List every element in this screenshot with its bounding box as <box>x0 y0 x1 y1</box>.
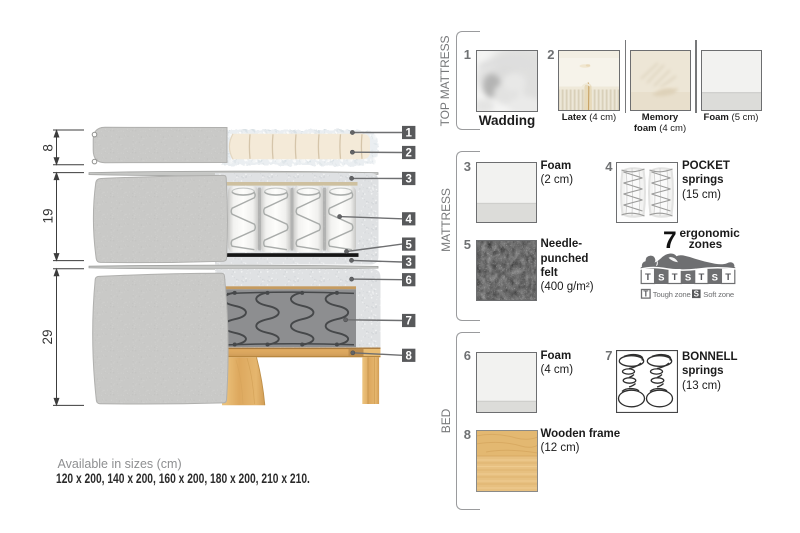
svg-text:S: S <box>712 272 718 283</box>
svg-text:5: 5 <box>405 239 412 251</box>
svg-text:19: 19 <box>40 208 55 223</box>
svg-text:7: 7 <box>405 316 411 328</box>
svg-text:4: 4 <box>405 214 412 226</box>
svg-text:6: 6 <box>405 275 411 287</box>
svg-text:8: 8 <box>41 144 56 152</box>
svg-text:S: S <box>694 290 700 299</box>
svg-text:S: S <box>658 272 664 283</box>
svg-text:T: T <box>725 272 731 283</box>
svg-text:8: 8 <box>405 351 412 363</box>
svg-text:T: T <box>645 272 651 283</box>
svg-text:Tough zone: Tough zone <box>653 290 691 299</box>
svg-text:2: 2 <box>405 148 411 160</box>
svg-text:3: 3 <box>405 174 411 186</box>
svg-text:T: T <box>698 272 704 283</box>
svg-text:T: T <box>643 290 648 299</box>
svg-text:1: 1 <box>405 128 412 140</box>
svg-text:3: 3 <box>405 257 411 269</box>
svg-text:S: S <box>685 272 691 283</box>
svg-text:Soft zone: Soft zone <box>703 290 734 299</box>
svg-text:T: T <box>672 272 678 283</box>
svg-text:29: 29 <box>40 329 55 344</box>
